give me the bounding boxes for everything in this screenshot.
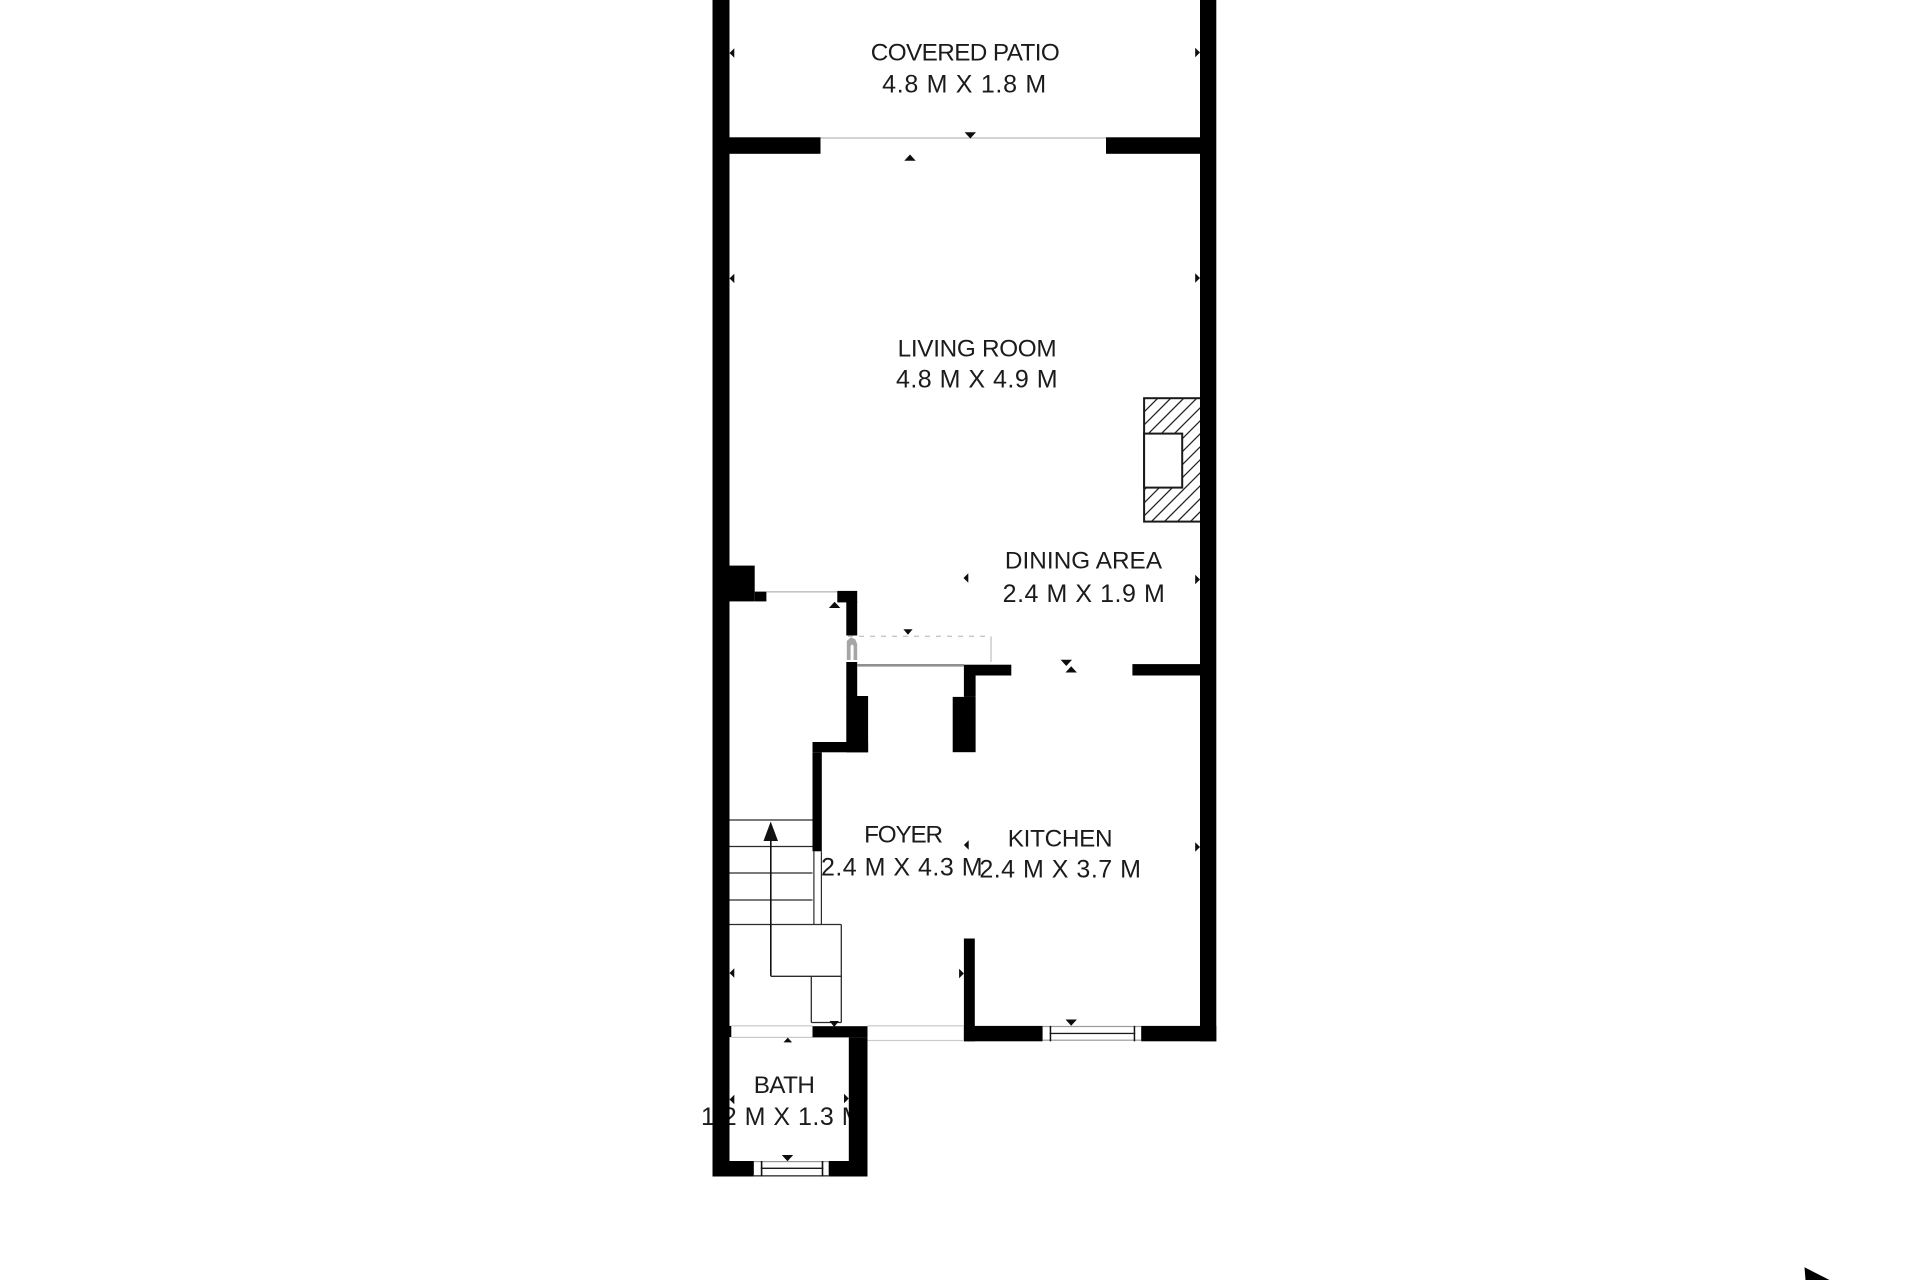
svg-text:2.4 M X 4.3 M: 2.4 M X 4.3 M (821, 853, 983, 881)
svg-text:4.8 M X 4.9 M: 4.8 M X 4.9 M (896, 366, 1058, 394)
svg-text:2.4 M X 3.7 M: 2.4 M X 3.7 M (979, 856, 1141, 884)
svg-text:DINING AREA: DINING AREA (1005, 548, 1163, 575)
svg-text:KITCHEN: KITCHEN (1008, 825, 1113, 852)
svg-text:2.4 M X 1.9 M: 2.4 M X 1.9 M (1003, 580, 1166, 608)
svg-text:LIVING ROOM: LIVING ROOM (898, 336, 1057, 363)
svg-text:COVERED PATIO: COVERED PATIO (871, 40, 1059, 67)
svg-text:FOYER: FOYER (864, 822, 942, 849)
svg-text:4.8 M X 1.8 M: 4.8 M X 1.8 M (882, 70, 1047, 98)
svg-text:BATH: BATH (754, 1072, 815, 1099)
